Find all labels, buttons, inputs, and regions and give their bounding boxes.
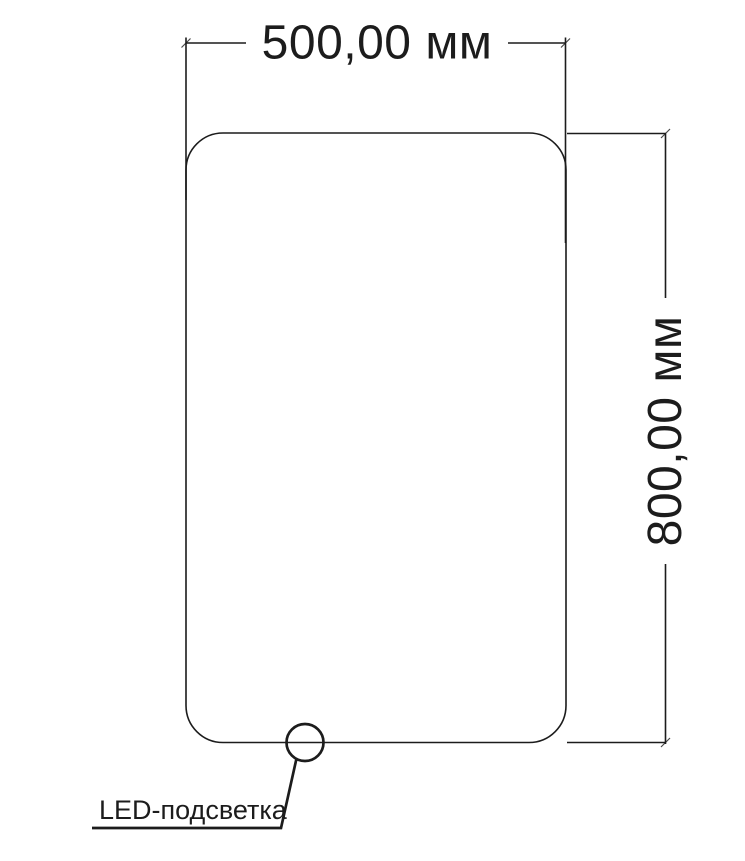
technical-drawing-canvas: 500,00 мм 800,00 мм LED-подсветка bbox=[0, 0, 745, 861]
mirror-dimension-diagram: 500,00 мм 800,00 мм LED-подсветка bbox=[0, 0, 745, 861]
width-dimension-label: 500,00 мм bbox=[262, 17, 493, 70]
width-dimension: 500,00 мм bbox=[182, 17, 571, 244]
height-dimension: 800,00 мм bbox=[567, 129, 692, 747]
height-dimension-label: 800,00 мм bbox=[639, 316, 692, 547]
mirror-outline bbox=[186, 133, 566, 743]
led-callout-label: LED-подсветка bbox=[99, 795, 288, 825]
